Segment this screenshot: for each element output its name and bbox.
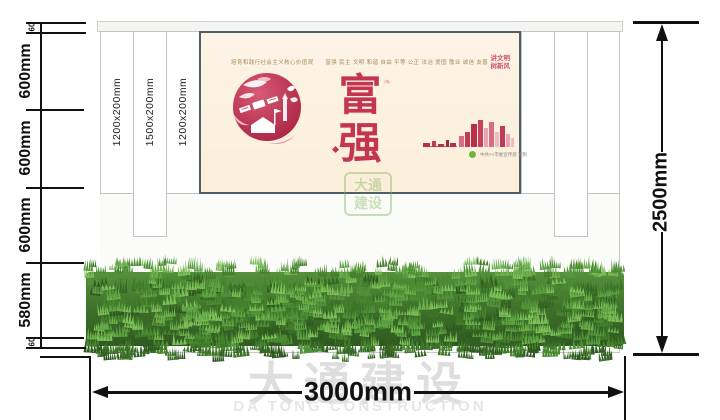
swirl-decoration: ❧ bbox=[383, 77, 391, 88]
dim-3000: 3000mm bbox=[304, 377, 412, 408]
bottom-dim-line-right bbox=[414, 391, 608, 394]
slat-label-2: 1500x200mm bbox=[144, 78, 156, 147]
culture-wall-drawing: 大通建设 DA TONG CONSTRUCTION 1200x200mm 150… bbox=[0, 0, 720, 420]
arrow-down-icon bbox=[656, 336, 668, 353]
arrow-left-icon bbox=[92, 386, 108, 398]
bottom-dim-line-left bbox=[106, 391, 302, 394]
right-dim-line-upper bbox=[661, 40, 663, 152]
dim-600-1: 600mm bbox=[17, 43, 35, 98]
left-tick-7 bbox=[26, 347, 86, 349]
credit-text: 中共××市委宣传部 宣制 bbox=[480, 152, 527, 158]
slogan-text: 讲文明 树新风 bbox=[491, 55, 511, 71]
dim-60-top: 60 bbox=[28, 23, 37, 32]
slat-label-3: 1200x200mm bbox=[177, 78, 189, 147]
left-tick-2 bbox=[26, 32, 86, 34]
dim-60-bottom: 60 bbox=[28, 338, 37, 347]
right-ext-line-v bbox=[624, 356, 626, 420]
slat-right-3 bbox=[587, 31, 620, 194]
slat-right-2 bbox=[554, 31, 588, 237]
left-tick-5 bbox=[26, 262, 84, 264]
city-skyline-illustration bbox=[423, 113, 515, 149]
right-tick-bottom bbox=[633, 353, 699, 356]
dim-600-3: 600mm bbox=[17, 197, 35, 252]
hedge-grass bbox=[84, 254, 626, 358]
poster-board: 培育和践行社会主义核心价值观 富强 民主 文明 和谐 自由 平等 公正 法治 爱… bbox=[199, 31, 521, 194]
arrow-right-icon bbox=[608, 386, 624, 398]
credit-badge-icon bbox=[469, 151, 476, 158]
dim-600-2: 600mm bbox=[17, 120, 35, 175]
left-ext-line-v bbox=[89, 356, 91, 420]
char-fu: 富 bbox=[337, 73, 383, 121]
char-qiang: 强 bbox=[337, 121, 383, 169]
slat-label-1: 1200x200mm bbox=[111, 78, 123, 147]
right-dim-line-lower bbox=[661, 232, 663, 337]
dim-580: 580mm bbox=[17, 272, 35, 327]
left-tick-3 bbox=[26, 109, 84, 111]
left-ext-corner-h bbox=[40, 356, 91, 358]
dim-2500: 2500mm bbox=[650, 152, 673, 232]
left-dim-line bbox=[40, 22, 42, 349]
arrow-up-icon bbox=[656, 24, 668, 41]
papercut-emblem-illustration bbox=[227, 69, 309, 153]
headline-characters: 富 强 bbox=[337, 73, 383, 169]
slat-right-1 bbox=[521, 31, 555, 194]
builder-logo-watermark: 大通 建设 bbox=[344, 172, 392, 216]
core-values-text: 培育和践行社会主义核心价值观 富强 民主 文明 和谐 自由 平等 公正 法治 爱… bbox=[231, 58, 501, 66]
left-tick-4 bbox=[26, 187, 84, 189]
